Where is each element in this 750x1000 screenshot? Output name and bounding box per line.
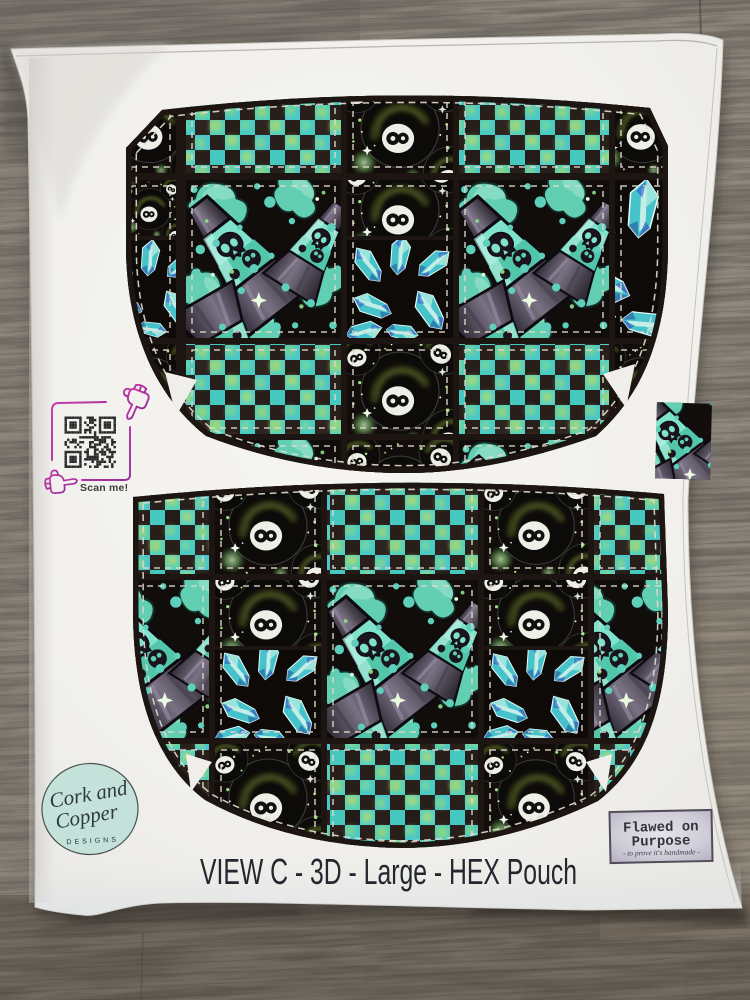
svg-text:- to prove it's handmade -: - to prove it's handmade - — [623, 847, 701, 858]
svg-text:Scan me!: Scan me! — [80, 482, 128, 494]
svg-text:VIEW C - 3D - Large - HEX Pouc: VIEW C - 3D - Large - HEX Pouch — [200, 851, 577, 892]
